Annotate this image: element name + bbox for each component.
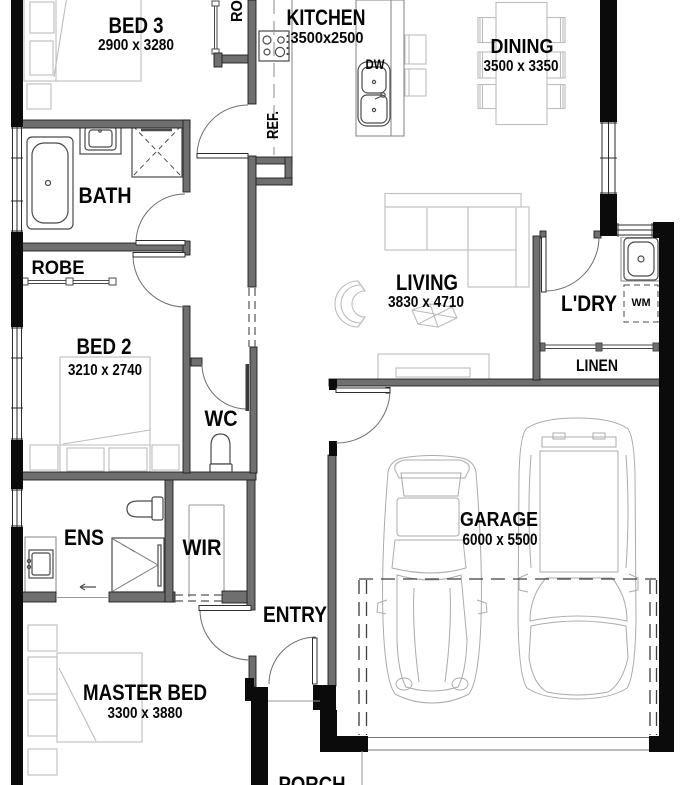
svg-text:3830 x 4710: 3830 x 4710	[388, 294, 464, 311]
svg-text:3500x2500: 3500x2500	[291, 30, 364, 47]
svg-text:WIR: WIR	[183, 535, 222, 560]
svg-text:WC: WC	[205, 406, 238, 431]
svg-text:REF.: REF.	[265, 111, 282, 139]
svg-text:BED 3: BED 3	[109, 13, 164, 38]
svg-text:ROBE: ROBE	[32, 258, 85, 279]
svg-text:ENS: ENS	[64, 525, 104, 550]
svg-text:WM: WM	[632, 297, 651, 309]
svg-text:LIVING: LIVING	[396, 270, 458, 295]
svg-text:BATH: BATH	[79, 183, 132, 208]
svg-text:KITCHEN: KITCHEN	[287, 5, 366, 30]
svg-text:MASTER BED: MASTER BED	[83, 680, 207, 705]
svg-text:3300 x 3880: 3300 x 3880	[108, 705, 183, 722]
svg-text:3500 x 3350: 3500 x 3350	[484, 58, 559, 75]
svg-text:BED 2: BED 2	[77, 334, 132, 359]
svg-text:2900 x 3280: 2900 x 3280	[98, 37, 174, 54]
svg-text:3210 x 2740: 3210 x 2740	[68, 362, 142, 379]
svg-text:DINING: DINING	[491, 36, 554, 58]
svg-text:GARAGE: GARAGE	[460, 509, 538, 531]
svg-text:DW: DW	[366, 56, 386, 72]
svg-text:6000 x 5500: 6000 x 5500	[463, 530, 538, 549]
svg-text:L'DRY: L'DRY	[561, 291, 617, 316]
svg-text:ENTRY: ENTRY	[263, 602, 327, 627]
svg-text:LINEN: LINEN	[576, 356, 618, 375]
svg-text:PORCH: PORCH	[279, 772, 346, 785]
svg-text:ROBE: ROBE	[229, 0, 246, 22]
